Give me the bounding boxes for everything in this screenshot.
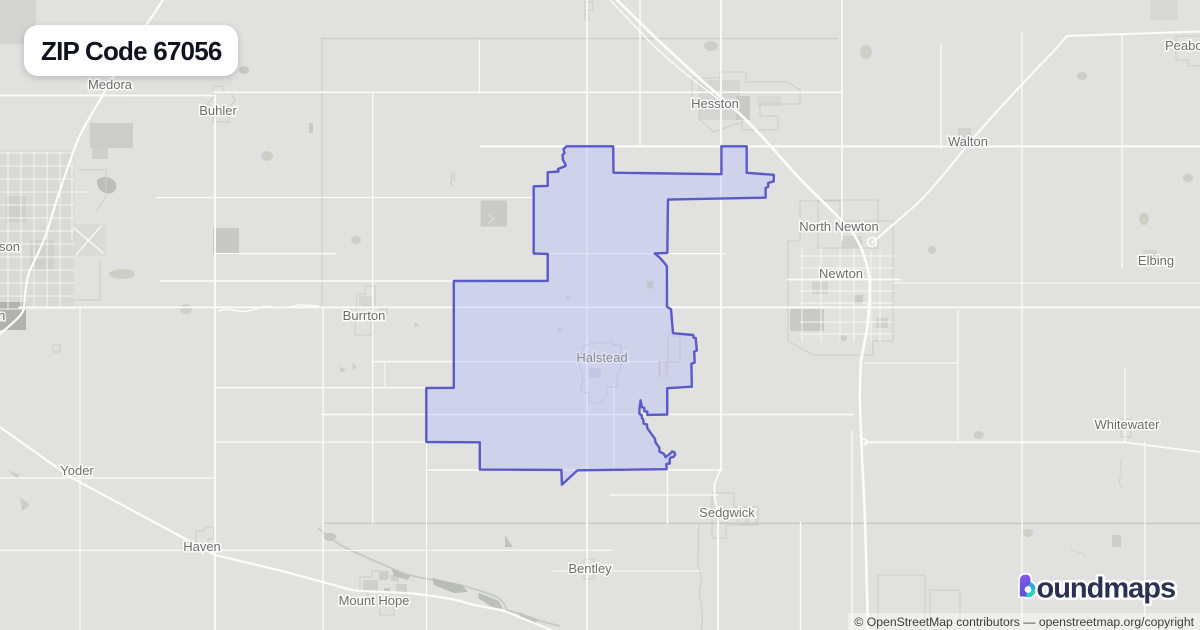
svg-text:Haven: Haven bbox=[183, 539, 221, 554]
svg-text:Halstead: Halstead bbox=[576, 350, 627, 365]
svg-text:Mount Hope: Mount Hope bbox=[339, 593, 410, 608]
svg-text:oundmaps: oundmaps bbox=[1037, 573, 1176, 605]
svg-text:Medora: Medora bbox=[88, 77, 133, 92]
svg-text:Walton: Walton bbox=[948, 134, 988, 149]
svg-text:Peabod: Peabod bbox=[1165, 38, 1200, 53]
svg-text:Newton: Newton bbox=[819, 266, 863, 281]
svg-text:North Newton: North Newton bbox=[799, 219, 878, 234]
svg-text:Hesston: Hesston bbox=[691, 96, 739, 111]
svg-text:n: n bbox=[0, 308, 5, 323]
svg-text:Burrton: Burrton bbox=[343, 308, 386, 323]
svg-text:Yoder: Yoder bbox=[60, 463, 94, 478]
svg-text:Bentley: Bentley bbox=[568, 561, 612, 576]
svg-text:son: son bbox=[0, 239, 20, 254]
svg-text:Buhler: Buhler bbox=[199, 103, 237, 118]
svg-text:Elbing: Elbing bbox=[1138, 253, 1174, 268]
svg-text:Whitewater: Whitewater bbox=[1094, 417, 1160, 432]
svg-text:Sedgwick: Sedgwick bbox=[699, 505, 755, 520]
